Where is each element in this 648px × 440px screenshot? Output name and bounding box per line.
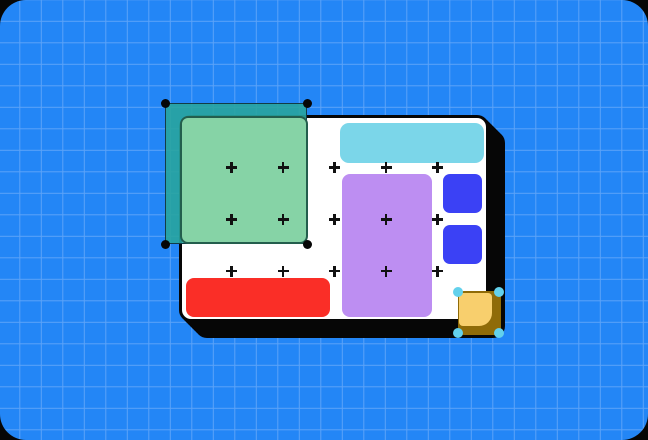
- grid-cross-icon: [432, 214, 443, 225]
- grid-cross-icon: [329, 214, 340, 225]
- canvas-grid-background: [0, 0, 648, 440]
- grid-cross-icon: [329, 162, 340, 173]
- scaling-gold-square-inner: [459, 293, 492, 326]
- illustration-stage: [0, 0, 648, 440]
- grid-cross-icon: [278, 214, 289, 225]
- grid-cross-icon: [226, 162, 237, 173]
- green-rectangle-selected[interactable]: [180, 116, 308, 244]
- resize-handle-nw-icon[interactable]: [453, 287, 463, 297]
- selection-handle-se-icon[interactable]: [303, 240, 312, 249]
- grid-cross-icon: [381, 266, 392, 277]
- grid-cross-icon: [329, 266, 340, 277]
- grid-cross-icon: [432, 162, 443, 173]
- grid-cross-icon: [432, 266, 443, 277]
- grid-cross-icon: [381, 162, 392, 173]
- resize-handle-ne-icon[interactable]: [494, 287, 504, 297]
- cyan-rectangle[interactable]: [340, 123, 484, 163]
- resize-handle-se-icon[interactable]: [494, 328, 504, 338]
- selection-handle-nw-icon[interactable]: [161, 99, 170, 108]
- scaling-gold-square[interactable]: [458, 291, 502, 335]
- blue-square-bottom[interactable]: [443, 225, 482, 264]
- grid-cross-icon: [381, 214, 392, 225]
- grid-cross-icon: [278, 266, 289, 277]
- red-rectangle[interactable]: [186, 278, 330, 317]
- purple-rectangle[interactable]: [342, 174, 432, 317]
- grid-cross-icon: [278, 162, 289, 173]
- selection-handle-ne-icon[interactable]: [303, 99, 312, 108]
- blue-square-top[interactable]: [443, 174, 482, 213]
- grid-cross-icon: [226, 214, 237, 225]
- grid-cross-icon: [226, 266, 237, 277]
- resize-handle-sw-icon[interactable]: [453, 328, 463, 338]
- selection-handle-sw-icon[interactable]: [161, 240, 170, 249]
